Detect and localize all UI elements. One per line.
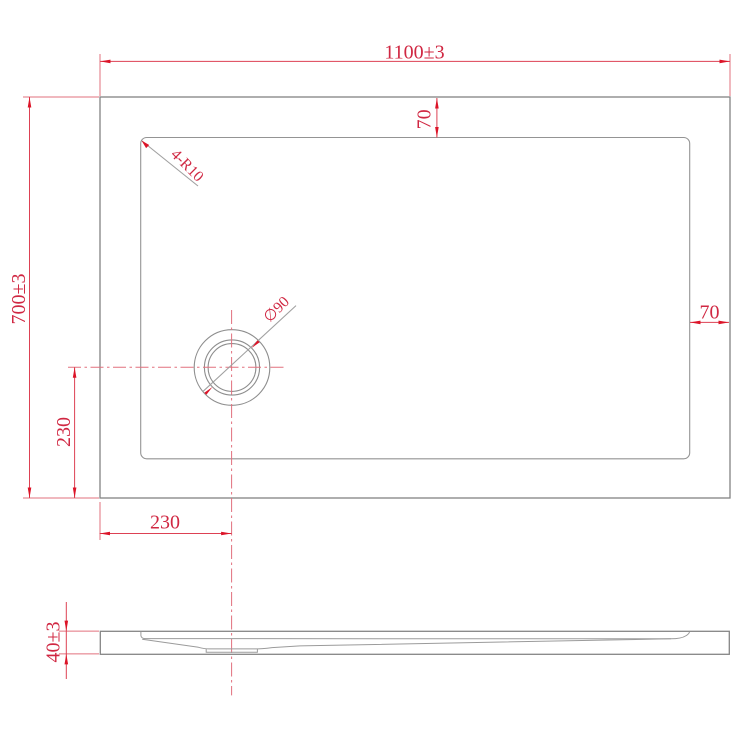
svg-text:70: 70 [414, 109, 436, 129]
svg-text:230: 230 [53, 417, 75, 447]
svg-text:40±3: 40±3 [43, 622, 65, 663]
svg-text:230: 230 [150, 512, 180, 534]
svg-text:700±3: 700±3 [8, 274, 30, 325]
svg-text:1100±3: 1100±3 [384, 42, 444, 64]
svg-text:70: 70 [700, 302, 720, 324]
